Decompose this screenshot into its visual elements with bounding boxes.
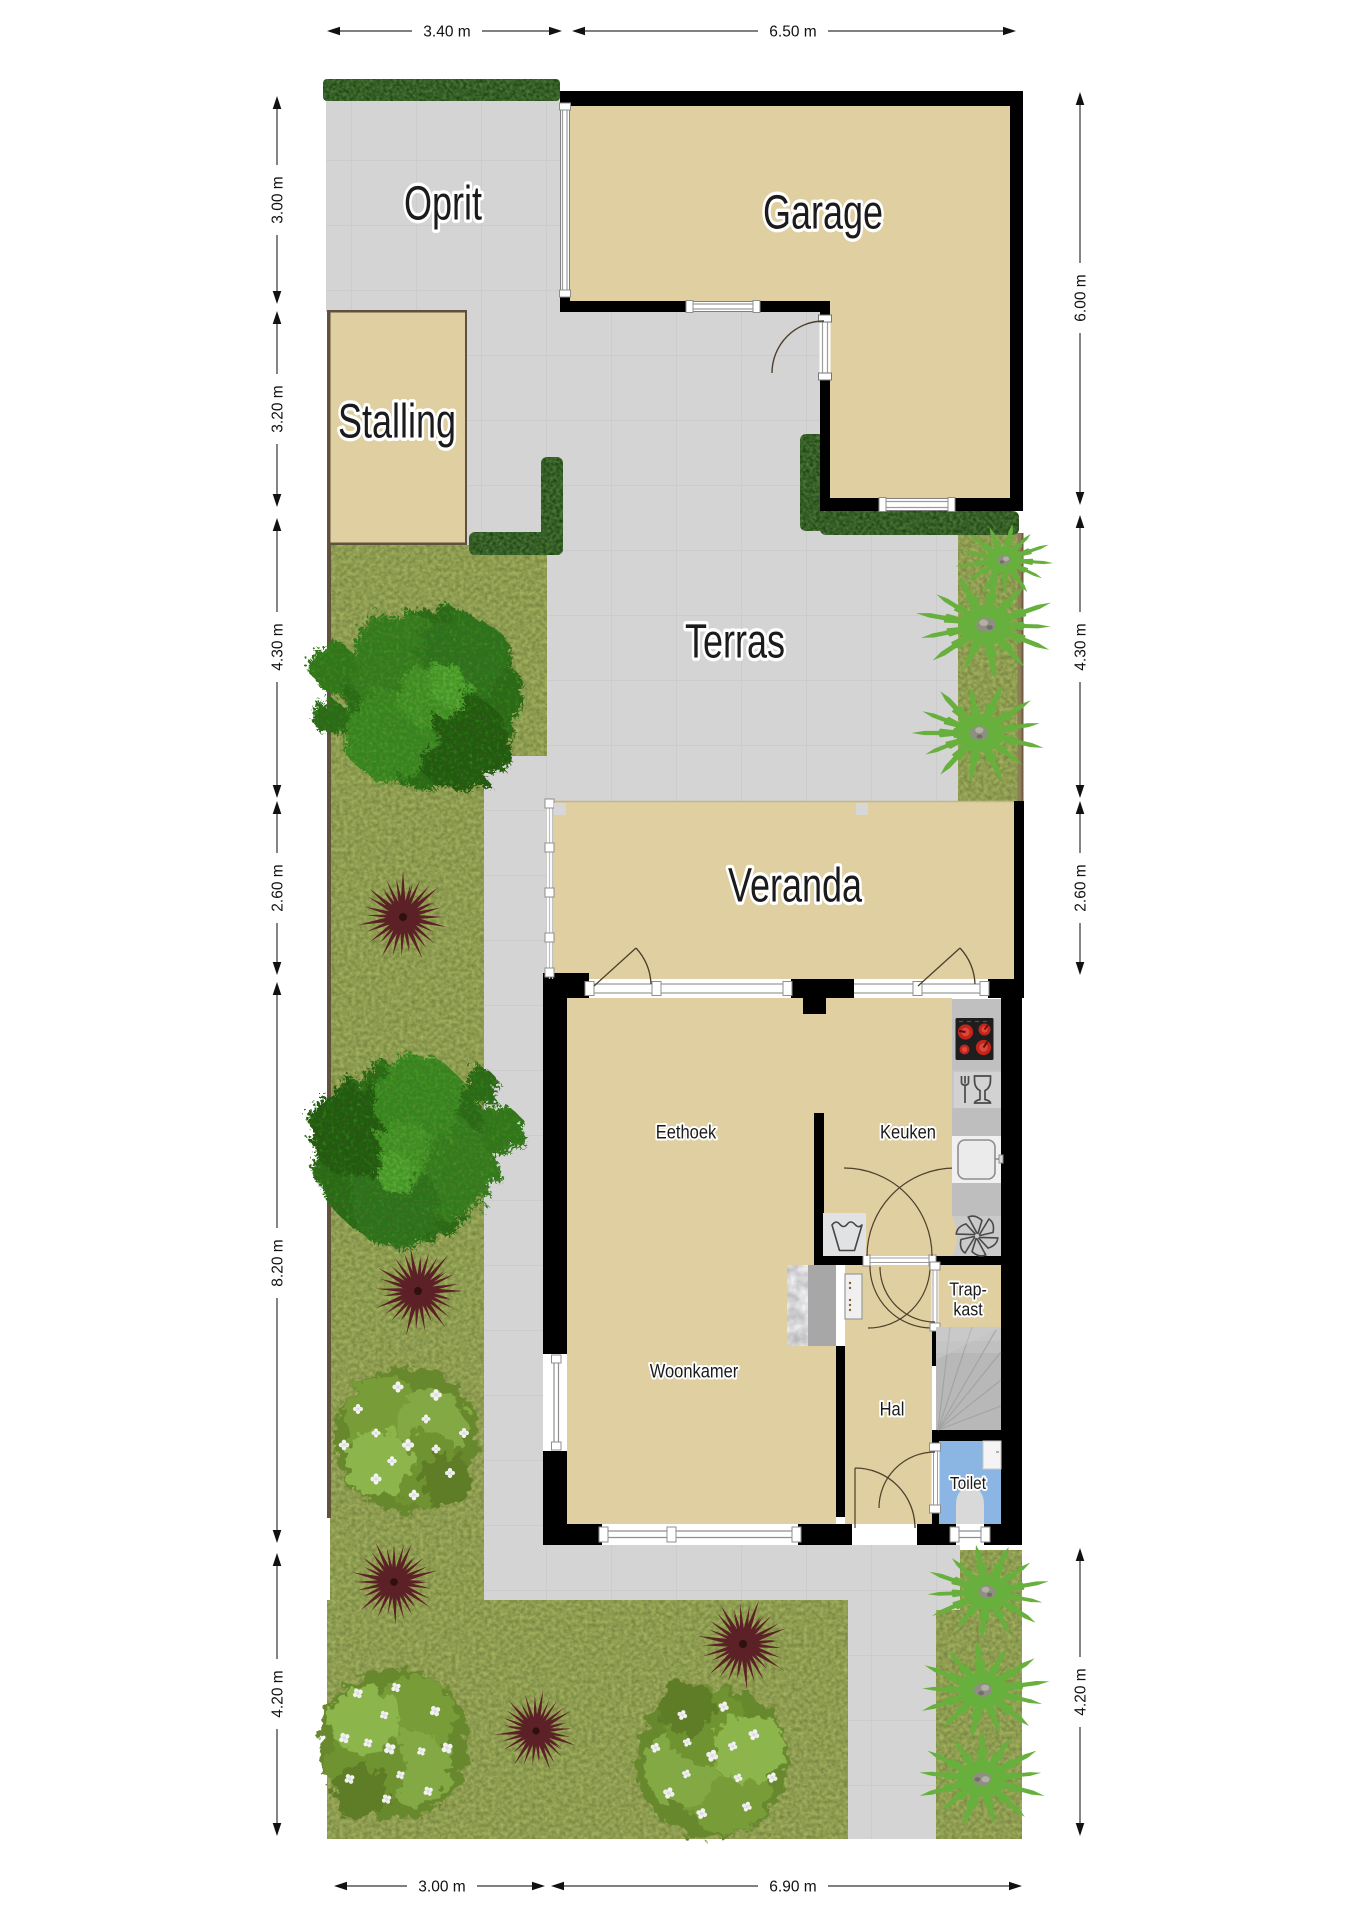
svg-text:6.00 m: 6.00 m [1073, 274, 1090, 321]
svg-text:2.60 m: 2.60 m [1073, 864, 1090, 911]
svg-text:Trap-: Trap- [949, 1278, 987, 1299]
svg-text:8.20 m: 8.20 m [270, 1239, 287, 1286]
svg-text:4.30 m: 4.30 m [1073, 623, 1090, 670]
svg-text:Woonkamer: Woonkamer [650, 1360, 739, 1381]
svg-text:3.00 m: 3.00 m [270, 176, 287, 223]
svg-text:3.00 m: 3.00 m [418, 1879, 465, 1896]
svg-text:Toilet: Toilet [950, 1473, 986, 1493]
svg-text:Oprit: Oprit [404, 176, 482, 229]
svg-text:3.20 m: 3.20 m [270, 385, 287, 432]
svg-text:Keuken: Keuken [880, 1121, 936, 1142]
svg-text:6.50 m: 6.50 m [769, 24, 816, 41]
svg-text:4.30 m: 4.30 m [270, 623, 287, 670]
svg-text:Stalling: Stalling [338, 394, 456, 447]
svg-text:Eethoek: Eethoek [656, 1121, 717, 1142]
svg-text:4.20 m: 4.20 m [1073, 1668, 1090, 1715]
svg-text:Veranda: Veranda [728, 858, 862, 911]
svg-text:Garage: Garage [763, 185, 883, 238]
svg-text:Hal: Hal [880, 1398, 905, 1419]
svg-text:Terras: Terras [685, 614, 785, 667]
svg-text:3.40 m: 3.40 m [423, 24, 470, 41]
svg-text:kast: kast [953, 1298, 983, 1319]
svg-text:2.60 m: 2.60 m [270, 864, 287, 911]
svg-text:4.20 m: 4.20 m [270, 1670, 287, 1717]
svg-text:6.90 m: 6.90 m [769, 1879, 816, 1896]
